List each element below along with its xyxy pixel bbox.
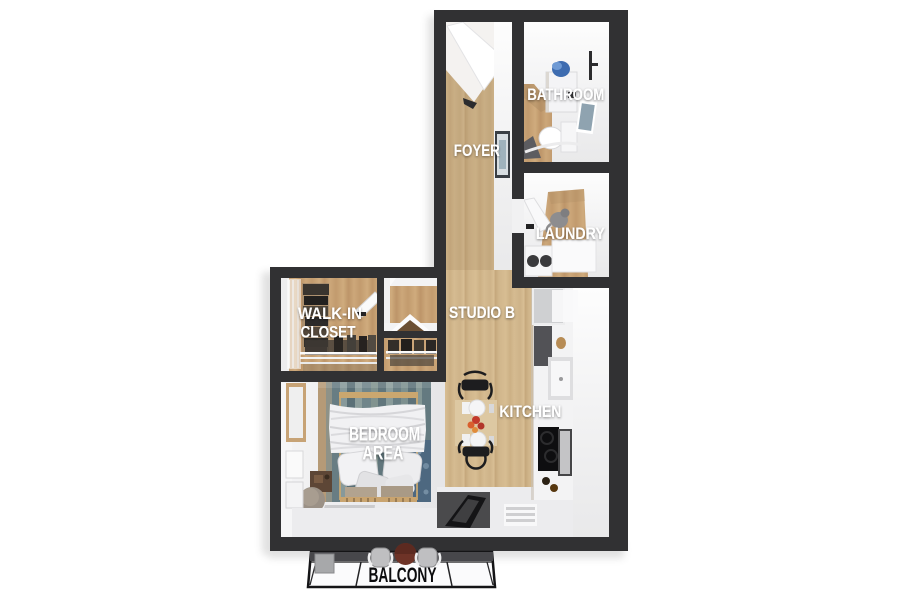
svg-text:BALCONY: BALCONY <box>369 564 437 587</box>
svg-text:AREA: AREA <box>363 444 404 465</box>
svg-text:STUDIO B: STUDIO B <box>449 303 515 322</box>
svg-text:BATHROOM: BATHROOM <box>527 85 604 104</box>
svg-text:KITCHEN: KITCHEN <box>499 402 561 421</box>
svg-text:FOYER: FOYER <box>454 141 500 160</box>
svg-text:BEDROOM: BEDROOM <box>349 425 420 446</box>
svg-text:CLOSET: CLOSET <box>301 323 356 342</box>
svg-text:WALK-IN: WALK-IN <box>298 304 362 323</box>
svg-text:LAUNDRY: LAUNDRY <box>536 224 606 243</box>
